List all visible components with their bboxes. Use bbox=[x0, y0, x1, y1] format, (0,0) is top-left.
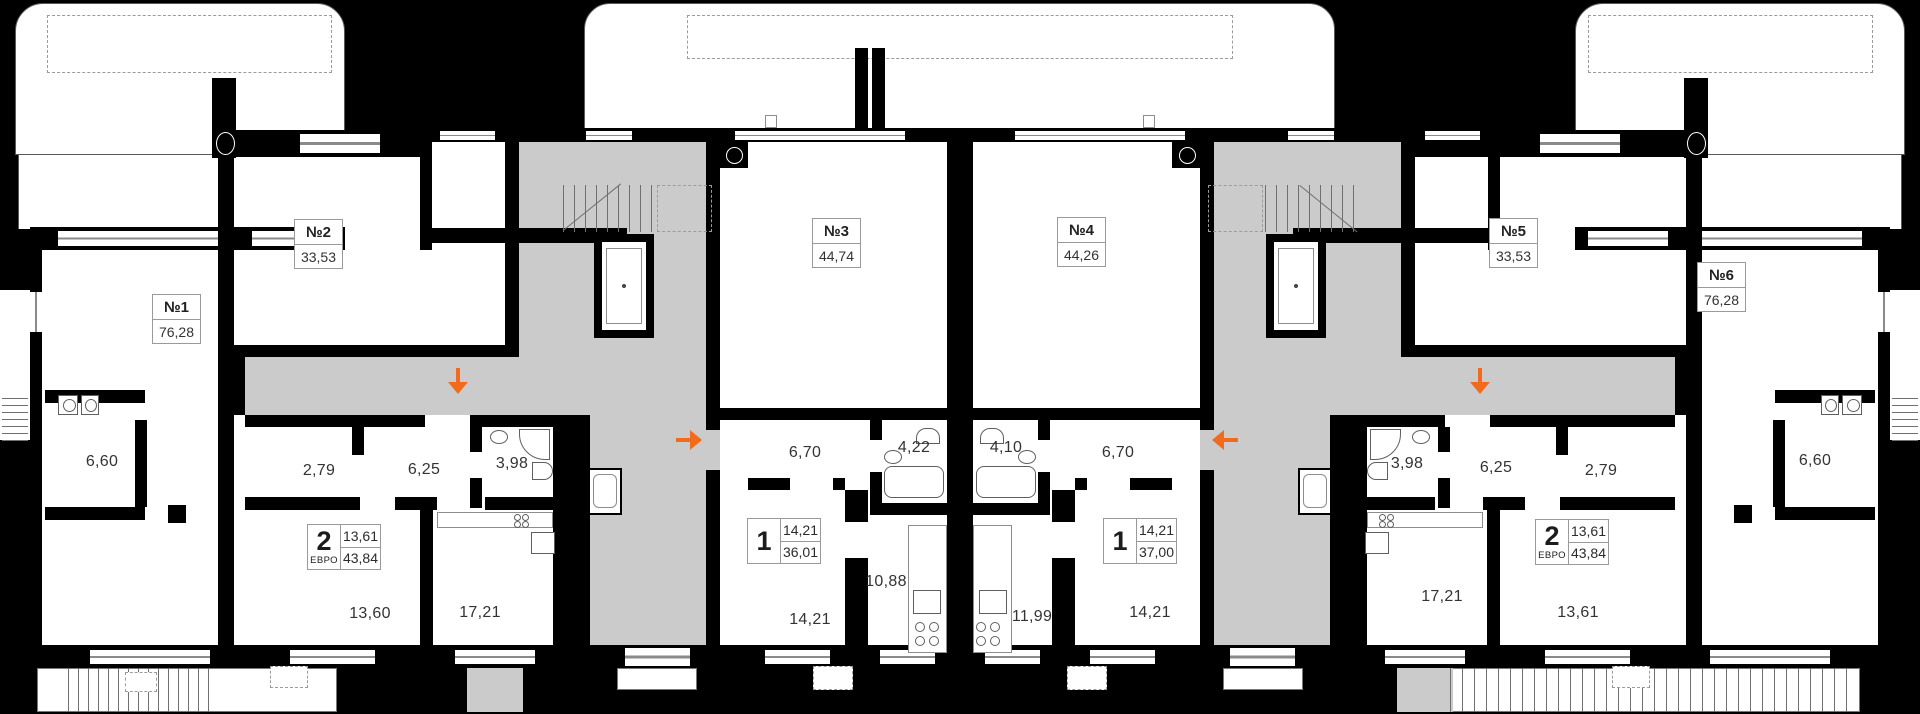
wall-segment bbox=[1734, 505, 1752, 523]
room-area-label: 3,98 bbox=[496, 455, 528, 473]
wall-segment bbox=[973, 408, 1200, 420]
stair-tread bbox=[1678, 668, 1679, 712]
stove-burner-icon bbox=[929, 622, 939, 632]
elevator-center-dot bbox=[1294, 284, 1298, 288]
stair-tread bbox=[1750, 668, 1751, 712]
wall-segment bbox=[1487, 510, 1500, 655]
washbasin-icon bbox=[490, 430, 508, 444]
stair-tread bbox=[1666, 668, 1667, 712]
apartment-rooms: 2 bbox=[1544, 523, 1559, 550]
apartment-badge-3[interactable]: 1 14,2137,00 bbox=[1103, 518, 1177, 564]
stove-burner-icon bbox=[976, 636, 986, 646]
apartment-living-area: 14,21 bbox=[1137, 519, 1176, 542]
wall-segment bbox=[872, 48, 885, 142]
wall-segment bbox=[470, 427, 482, 452]
wall-segment bbox=[1330, 415, 1367, 655]
stair-tread bbox=[1892, 412, 1918, 413]
entrance-arrow-1 bbox=[448, 368, 474, 394]
terrace-right-apron bbox=[1688, 155, 1902, 229]
stair-tread bbox=[563, 185, 564, 232]
apartment-living-area: 14,21 bbox=[781, 519, 820, 542]
room-area-label: 6,25 bbox=[408, 461, 440, 479]
wall-segment bbox=[395, 497, 437, 510]
window bbox=[455, 650, 535, 664]
stove-burner-icon bbox=[522, 521, 529, 528]
wall-segment bbox=[1200, 470, 1214, 655]
elevator-door-icon bbox=[616, 330, 632, 338]
toilet-icon bbox=[532, 462, 553, 480]
stove-burner-icon bbox=[1387, 514, 1394, 521]
wall-segment bbox=[1052, 558, 1075, 655]
stair-tread bbox=[1474, 668, 1475, 712]
stove-burner-icon bbox=[990, 622, 1000, 632]
entrance-porch-2 bbox=[1223, 668, 1303, 690]
wall-segment bbox=[168, 505, 186, 523]
wall-segment bbox=[1038, 472, 1050, 515]
kitchen-counter bbox=[437, 512, 553, 528]
stair-tread bbox=[1892, 398, 1918, 399]
wall-segment bbox=[1038, 420, 1050, 440]
unit-number: №1 bbox=[153, 295, 200, 320]
window bbox=[440, 131, 495, 140]
window bbox=[765, 650, 830, 664]
apartment-total-area: 43,84 bbox=[1569, 543, 1608, 565]
window bbox=[1588, 231, 1668, 246]
kitchen-sink-icon bbox=[979, 590, 1007, 614]
wall-segment bbox=[870, 420, 882, 440]
stove-burner-icon bbox=[929, 636, 939, 646]
side-porch-west bbox=[0, 290, 30, 440]
vent-shaft-icon bbox=[726, 147, 743, 164]
unit-area: 44,74 bbox=[813, 244, 860, 267]
stair-tread bbox=[1892, 419, 1918, 420]
wall-segment bbox=[218, 155, 234, 655]
stove-burner-icon bbox=[1379, 514, 1386, 521]
room-area-label: 14,21 bbox=[1129, 604, 1171, 622]
stair-tread bbox=[1702, 668, 1703, 712]
window bbox=[58, 231, 218, 246]
wall-segment bbox=[1483, 497, 1525, 510]
wall-segment bbox=[947, 142, 973, 660]
elevator-center-dot bbox=[622, 284, 626, 288]
window bbox=[1710, 650, 1830, 664]
room-area-label: 3,98 bbox=[1391, 455, 1423, 473]
window bbox=[586, 131, 632, 140]
entrance-ramp-2 bbox=[1397, 668, 1453, 712]
stair-tread bbox=[1892, 426, 1918, 427]
stair-tread bbox=[629, 185, 630, 232]
stair-tread bbox=[2, 419, 28, 420]
unit-number: №6 bbox=[1698, 263, 1745, 288]
window bbox=[1230, 648, 1295, 666]
apartment-badge-2[interactable]: 1 14,2136,01 bbox=[747, 518, 821, 564]
stair-tread bbox=[1810, 668, 1811, 712]
stair-tread bbox=[1486, 668, 1487, 712]
room-area-label: 10,88 bbox=[865, 573, 907, 591]
stair-tread bbox=[108, 668, 109, 712]
shower-tray-icon bbox=[1303, 474, 1327, 508]
wall-segment bbox=[1052, 490, 1075, 522]
stair-tread bbox=[198, 668, 199, 712]
wall-segment bbox=[845, 490, 868, 522]
wall-segment bbox=[1401, 142, 1415, 357]
stair-tread bbox=[2, 412, 28, 413]
stair-tread bbox=[1522, 668, 1523, 712]
wall-segment bbox=[45, 507, 145, 520]
bathtub-icon bbox=[976, 466, 1036, 498]
room-area-label: 13,60 bbox=[349, 605, 391, 623]
window bbox=[300, 134, 380, 153]
stair-tread bbox=[1892, 433, 1918, 434]
wall-segment bbox=[973, 503, 1038, 515]
apartment-rooms: 2 bbox=[316, 528, 331, 555]
stair-tread bbox=[1834, 668, 1835, 712]
wall-segment bbox=[578, 415, 590, 660]
stair-tread bbox=[585, 185, 586, 232]
stair-tread bbox=[574, 185, 575, 232]
stair-tread bbox=[188, 668, 189, 712]
stair-tread bbox=[1498, 668, 1499, 712]
wall-segment bbox=[1438, 427, 1450, 452]
stair-tread bbox=[651, 185, 652, 232]
room-area-label: 6,60 bbox=[1799, 452, 1831, 470]
window bbox=[1878, 292, 1890, 332]
apartment-badge-1[interactable]: 2ЕВРО 13,6143,84 bbox=[307, 524, 381, 570]
wall-segment bbox=[420, 510, 433, 655]
wall-segment bbox=[855, 48, 868, 142]
shower-tray-icon bbox=[593, 474, 617, 508]
room-area-label: 6,70 bbox=[1102, 444, 1134, 462]
wall-segment bbox=[833, 478, 845, 490]
unit-badge-5[interactable]: №5 33,53 bbox=[1489, 218, 1538, 268]
corridor-1 bbox=[245, 357, 720, 415]
stair-tread bbox=[1546, 668, 1547, 712]
floor-plan: №1 76,28 №2 33,53 №3 44,74 №4 44,26 №5 3… bbox=[0, 0, 1920, 714]
corridor-2 bbox=[1200, 357, 1675, 415]
balcony-outline bbox=[1612, 666, 1650, 688]
wall-segment bbox=[245, 497, 360, 510]
unit-area: 33,53 bbox=[295, 245, 342, 268]
stair-tread bbox=[1298, 185, 1299, 232]
stair-tread bbox=[1331, 185, 1332, 232]
window bbox=[90, 650, 210, 664]
stair-tread bbox=[98, 668, 99, 712]
stair-tread bbox=[1726, 668, 1727, 712]
stove-burner-icon bbox=[1387, 521, 1394, 528]
unit-badge-3[interactable]: №3 44,74 bbox=[812, 218, 861, 268]
stair-tread bbox=[158, 668, 159, 712]
balcony-outline bbox=[813, 666, 853, 690]
window bbox=[30, 292, 42, 332]
kitchen-sink-icon bbox=[531, 532, 555, 554]
vent-shaft-icon bbox=[1687, 132, 1706, 155]
wall-segment bbox=[232, 345, 519, 357]
stair-tread bbox=[78, 668, 79, 712]
wall-segment bbox=[882, 503, 947, 515]
wall-segment bbox=[1556, 427, 1568, 455]
elevator-door-icon bbox=[1288, 330, 1304, 338]
unit-number: №2 bbox=[295, 220, 342, 245]
roof-outline-right bbox=[1588, 15, 1873, 73]
unit-badge-1[interactable]: №1 76,28 bbox=[152, 294, 201, 344]
stair-tread bbox=[1606, 668, 1607, 712]
unit-badge-2[interactable]: №2 33,53 bbox=[294, 219, 343, 269]
window bbox=[290, 650, 375, 664]
stove-burner-icon bbox=[514, 514, 521, 521]
window bbox=[1385, 650, 1465, 664]
apartment-living-area: 13,61 bbox=[341, 525, 380, 548]
room-area-label: 6,25 bbox=[1480, 459, 1512, 477]
stair-tread bbox=[1714, 668, 1715, 712]
wall-segment bbox=[706, 470, 720, 655]
apartment-type: ЕВРО bbox=[1538, 550, 1566, 561]
stair-tread bbox=[1287, 185, 1288, 232]
entrance-porch-1 bbox=[617, 668, 697, 690]
entrance-arrow-3 bbox=[1212, 430, 1238, 456]
wall-segment bbox=[1490, 415, 1675, 427]
stair-tread bbox=[1450, 668, 1451, 712]
stair-tread bbox=[1738, 668, 1739, 712]
apartment-type: ЕВРО bbox=[310, 555, 338, 566]
stair-tread bbox=[2, 426, 28, 427]
balcony-outline bbox=[125, 672, 157, 692]
wall-segment bbox=[352, 427, 364, 455]
stair-tread bbox=[1276, 185, 1277, 232]
unit-area: 44,26 bbox=[1058, 243, 1105, 266]
room-area-label: 17,21 bbox=[1421, 588, 1463, 606]
stair-tread bbox=[1892, 440, 1918, 441]
wall-segment bbox=[1686, 155, 1702, 655]
stair-tread bbox=[1534, 668, 1535, 712]
entrance-arrow-2 bbox=[676, 430, 702, 456]
room-area-label: 2,79 bbox=[1585, 462, 1617, 480]
stair-tread bbox=[1846, 668, 1847, 712]
washbasin-icon bbox=[1412, 430, 1430, 444]
stair-tread bbox=[2, 398, 28, 399]
stair-tread bbox=[168, 668, 169, 712]
wall-segment bbox=[748, 478, 790, 490]
stove-burner-icon bbox=[1379, 521, 1386, 528]
room-area-label: 4,10 bbox=[990, 439, 1022, 457]
apartment-badge-4[interactable]: 2ЕВРО 13,6143,84 bbox=[1535, 519, 1609, 565]
stove-burner-icon bbox=[514, 521, 521, 528]
window bbox=[1540, 134, 1620, 153]
room-area-label: 6,70 bbox=[789, 444, 821, 462]
stair-tread bbox=[1558, 668, 1559, 712]
stair-tread bbox=[1582, 668, 1583, 712]
stair-tread bbox=[2, 433, 28, 434]
wall-segment bbox=[1130, 478, 1172, 490]
unit-area: 76,28 bbox=[153, 320, 200, 343]
column-mark bbox=[765, 115, 777, 128]
wall-segment bbox=[505, 142, 519, 357]
kitchen-counter bbox=[973, 525, 1012, 653]
vent-shaft-icon bbox=[216, 132, 235, 155]
column-mark bbox=[1143, 115, 1155, 128]
stair-tread bbox=[118, 668, 119, 712]
stair-tread bbox=[1786, 668, 1787, 712]
room-area-label: 11,99 bbox=[1012, 608, 1052, 626]
stove-burner-icon bbox=[915, 622, 925, 632]
stair-tread bbox=[208, 668, 209, 712]
unit-badge-6[interactable]: №6 76,28 bbox=[1697, 262, 1746, 312]
wall-segment bbox=[1775, 507, 1875, 520]
stove-burner-icon bbox=[915, 636, 925, 646]
kitchen-sink-icon bbox=[913, 590, 941, 614]
washer-drum-icon bbox=[1847, 399, 1860, 412]
sink-bowl-icon bbox=[1825, 399, 1837, 412]
room-area-label: 6,60 bbox=[86, 453, 118, 471]
stair-tread bbox=[1320, 185, 1321, 232]
stair-tread bbox=[1892, 405, 1918, 406]
stair-tread bbox=[1594, 668, 1595, 712]
room-area-label: 14,21 bbox=[789, 611, 831, 629]
stair-tread bbox=[1798, 668, 1799, 712]
window bbox=[1288, 131, 1334, 140]
stair-tread bbox=[618, 185, 619, 232]
side-porch-east bbox=[1890, 290, 1920, 440]
window bbox=[1545, 650, 1630, 664]
room-area-label: 2,79 bbox=[303, 462, 335, 480]
stair-tread bbox=[640, 185, 641, 232]
stair-tread bbox=[1654, 668, 1655, 712]
stair-tread bbox=[2, 440, 28, 441]
unit-number: №3 bbox=[813, 219, 860, 244]
wall-segment bbox=[1773, 420, 1785, 507]
toilet-icon bbox=[1367, 462, 1388, 480]
room-area-label: 4,22 bbox=[898, 439, 930, 457]
unit-area: 76,28 bbox=[1698, 288, 1745, 311]
unit-number: №5 bbox=[1490, 219, 1537, 244]
entrance-arrow-4 bbox=[1470, 368, 1496, 394]
balcony-outline bbox=[270, 666, 308, 688]
wall-segment bbox=[420, 128, 1415, 142]
window bbox=[1425, 131, 1480, 140]
stair-tread bbox=[1265, 185, 1266, 232]
wall-segment bbox=[1401, 345, 1690, 357]
stair-tread bbox=[1690, 668, 1691, 712]
wall-segment bbox=[470, 478, 482, 508]
stair-tread bbox=[2, 405, 28, 406]
stair-tread bbox=[1570, 668, 1571, 712]
stove-burner-icon bbox=[990, 636, 1000, 646]
wall-segment bbox=[1560, 497, 1675, 510]
apartment-total-area: 37,00 bbox=[1137, 542, 1176, 564]
sink-bowl-icon bbox=[85, 399, 97, 412]
stair-landing-outline bbox=[1208, 185, 1263, 232]
stair-tread bbox=[596, 185, 597, 232]
wall-segment bbox=[1075, 478, 1087, 490]
apartment-rooms: 1 bbox=[1112, 528, 1127, 555]
stair-tread bbox=[1822, 668, 1823, 712]
vent-shaft-icon bbox=[1179, 147, 1196, 164]
stair-tread bbox=[1353, 185, 1354, 232]
stair-tread bbox=[1342, 185, 1343, 232]
stove-burner-icon bbox=[976, 622, 986, 632]
roof-outline-middle bbox=[687, 15, 1233, 59]
entrance-ramp-1 bbox=[467, 668, 523, 712]
room-area-label: 13,61 bbox=[1557, 604, 1599, 622]
balcony-outline bbox=[1067, 666, 1107, 690]
unit-area: 33,53 bbox=[1490, 244, 1537, 267]
wall-segment bbox=[245, 415, 425, 427]
wall-segment bbox=[135, 420, 147, 507]
wall-segment bbox=[1438, 478, 1450, 508]
wall-segment bbox=[233, 357, 245, 415]
window bbox=[625, 648, 690, 666]
roof-outline-left bbox=[47, 15, 332, 73]
stair-tread bbox=[178, 668, 179, 712]
stair-tread bbox=[68, 668, 69, 712]
stair-landing-outline bbox=[657, 185, 712, 232]
stove-burner-icon bbox=[522, 514, 529, 521]
apartment-total-area: 36,01 bbox=[781, 542, 820, 564]
washer-drum-icon bbox=[63, 399, 76, 412]
room-area-label: 17,21 bbox=[459, 604, 501, 622]
apartment-total-area: 43,84 bbox=[341, 548, 380, 570]
apartment-living-area: 13,61 bbox=[1569, 520, 1608, 543]
window bbox=[735, 131, 905, 140]
kitchen-counter bbox=[908, 525, 947, 653]
wall-segment bbox=[720, 408, 947, 420]
stair-tread bbox=[1462, 668, 1463, 712]
terrace-left-apron bbox=[18, 155, 232, 229]
bathtub-icon bbox=[884, 466, 944, 498]
stair-tread bbox=[1762, 668, 1763, 712]
window bbox=[1702, 231, 1862, 246]
kitchen-sink-icon bbox=[1365, 532, 1389, 554]
unit-number: №4 bbox=[1058, 218, 1105, 243]
unit-badge-4[interactable]: №4 44,26 bbox=[1057, 217, 1106, 267]
stair-tread bbox=[1774, 668, 1775, 712]
window bbox=[1015, 131, 1185, 140]
apartment-rooms: 1 bbox=[756, 528, 771, 555]
stair-tread bbox=[88, 668, 89, 712]
stair-tread bbox=[1510, 668, 1511, 712]
window bbox=[1090, 650, 1155, 664]
wall-segment bbox=[1675, 357, 1687, 415]
wall-segment bbox=[870, 472, 882, 515]
